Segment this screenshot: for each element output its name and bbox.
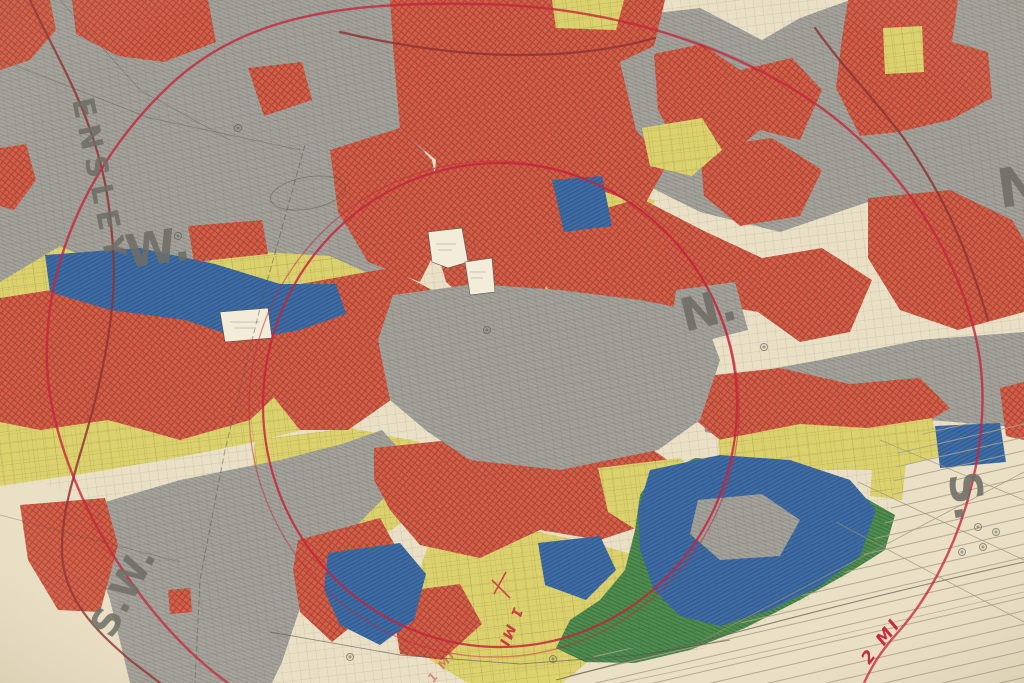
vignette-overlay bbox=[0, 0, 1024, 683]
map-canvas: ENSLEY W. N. S. S.W. N 1 MI 1 MI 2 MI bbox=[0, 0, 1024, 683]
redlining-map-scan: ENSLEY W. N. S. S.W. N 1 MI 1 MI 2 MI bbox=[0, 0, 1024, 683]
